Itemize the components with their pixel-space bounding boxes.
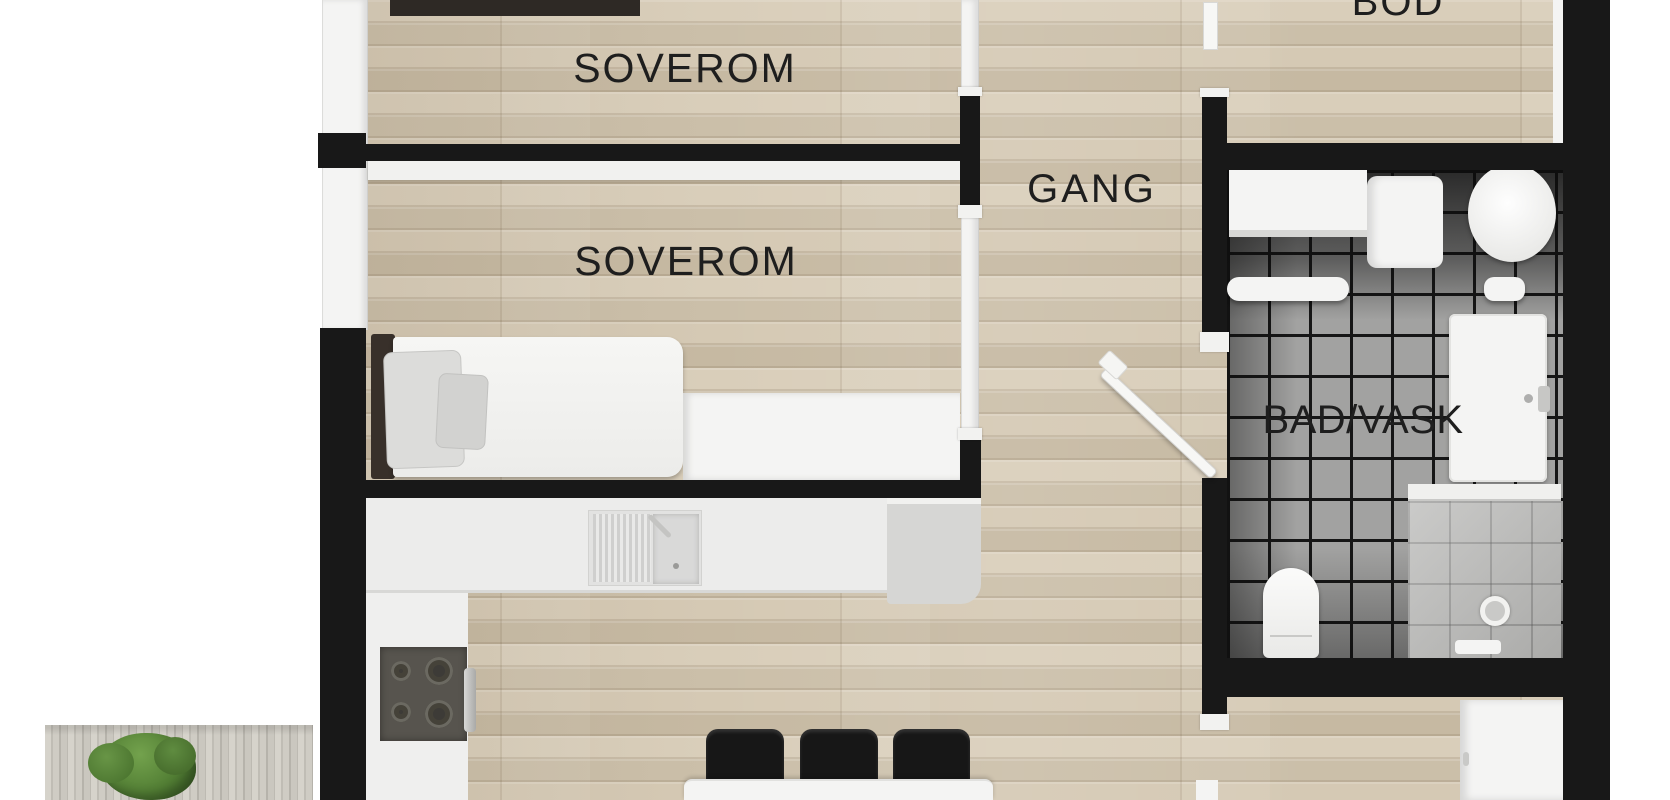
vanity-faucet — [1538, 386, 1550, 412]
dining-table — [684, 779, 993, 800]
wall-shelf-right — [1484, 277, 1525, 301]
wall-bod-bath — [1215, 143, 1563, 170]
shower-floor — [1408, 501, 1561, 658]
stove-cooktop — [380, 647, 467, 741]
plant-bush-right — [154, 737, 196, 775]
burner-small-bottom — [391, 702, 411, 722]
room-label-bad-vask: BAD/VASK — [1213, 398, 1513, 443]
sink-drain — [673, 563, 679, 569]
floor-plan-canvas: SOVEROM SOVEROM GANG BOD BAD/VASK — [0, 0, 1670, 800]
cap-post-low — [958, 428, 982, 440]
door-strip-bottom — [1196, 780, 1218, 800]
bed-pillow-small — [435, 373, 489, 451]
dining-chair-3 — [893, 729, 970, 785]
toilet-seat-line — [1270, 635, 1312, 637]
burner-large-bottom — [425, 700, 453, 728]
burner-small-top — [391, 661, 411, 681]
wall-block-left — [318, 133, 366, 168]
burner-large-top — [425, 657, 453, 685]
laundry-box — [1367, 176, 1443, 268]
plant-bush-left — [88, 743, 134, 783]
shower-drain — [1480, 596, 1510, 626]
unit-handle — [1463, 752, 1469, 766]
wall-bedroom-divider — [366, 144, 961, 161]
cap-post-top — [958, 87, 982, 96]
cap-bathwall-low — [1200, 714, 1229, 730]
dining-chair-1 — [706, 729, 784, 785]
plant — [88, 733, 208, 800]
wall-post-gang-bottom — [960, 440, 981, 498]
room-label-soverom-2: SOVEROM — [536, 238, 836, 285]
wall-right-exterior — [1563, 0, 1610, 800]
wall-shelf-left — [1227, 277, 1349, 301]
shower-glass-wall — [1408, 484, 1561, 501]
sink-drainboard — [593, 514, 651, 582]
oven-handle — [464, 668, 476, 732]
wall-bath-bottom — [1205, 658, 1565, 697]
room-label-soverom-1: SOVEROM — [535, 45, 835, 92]
wall-inner-strip-bod — [1553, 0, 1563, 143]
washer-unit — [1229, 170, 1367, 237]
dining-chair-2 — [800, 729, 878, 785]
shower-fitting — [1455, 640, 1501, 654]
cap-bathwall-mid — [1200, 332, 1229, 352]
wall-face-bedroom-divider — [368, 158, 961, 180]
wall-post-gang-top — [960, 95, 980, 205]
wall-bedroom2-kitchen — [363, 480, 981, 498]
room-label-gang: GANG — [992, 167, 1192, 212]
door-bod-leaf — [1203, 2, 1218, 50]
cap-bathwall-top — [1200, 88, 1229, 97]
bedroom1-furniture-edge — [390, 0, 640, 16]
wall-gang-bath-upper — [1202, 97, 1227, 332]
cap-post-mid — [958, 205, 982, 218]
kitchen-sink — [588, 510, 702, 586]
sideboard-desk — [683, 393, 960, 480]
kitchen-end-cabinet — [887, 498, 981, 604]
vanity-drain — [1524, 394, 1533, 403]
room-label-bod: BOD — [1298, 0, 1498, 25]
storage-unit-bottom-right — [1460, 700, 1563, 800]
wall-left-lower — [320, 328, 366, 800]
round-basin — [1468, 164, 1556, 262]
toilet — [1263, 568, 1319, 658]
wall-partition-gang — [961, 0, 979, 498]
